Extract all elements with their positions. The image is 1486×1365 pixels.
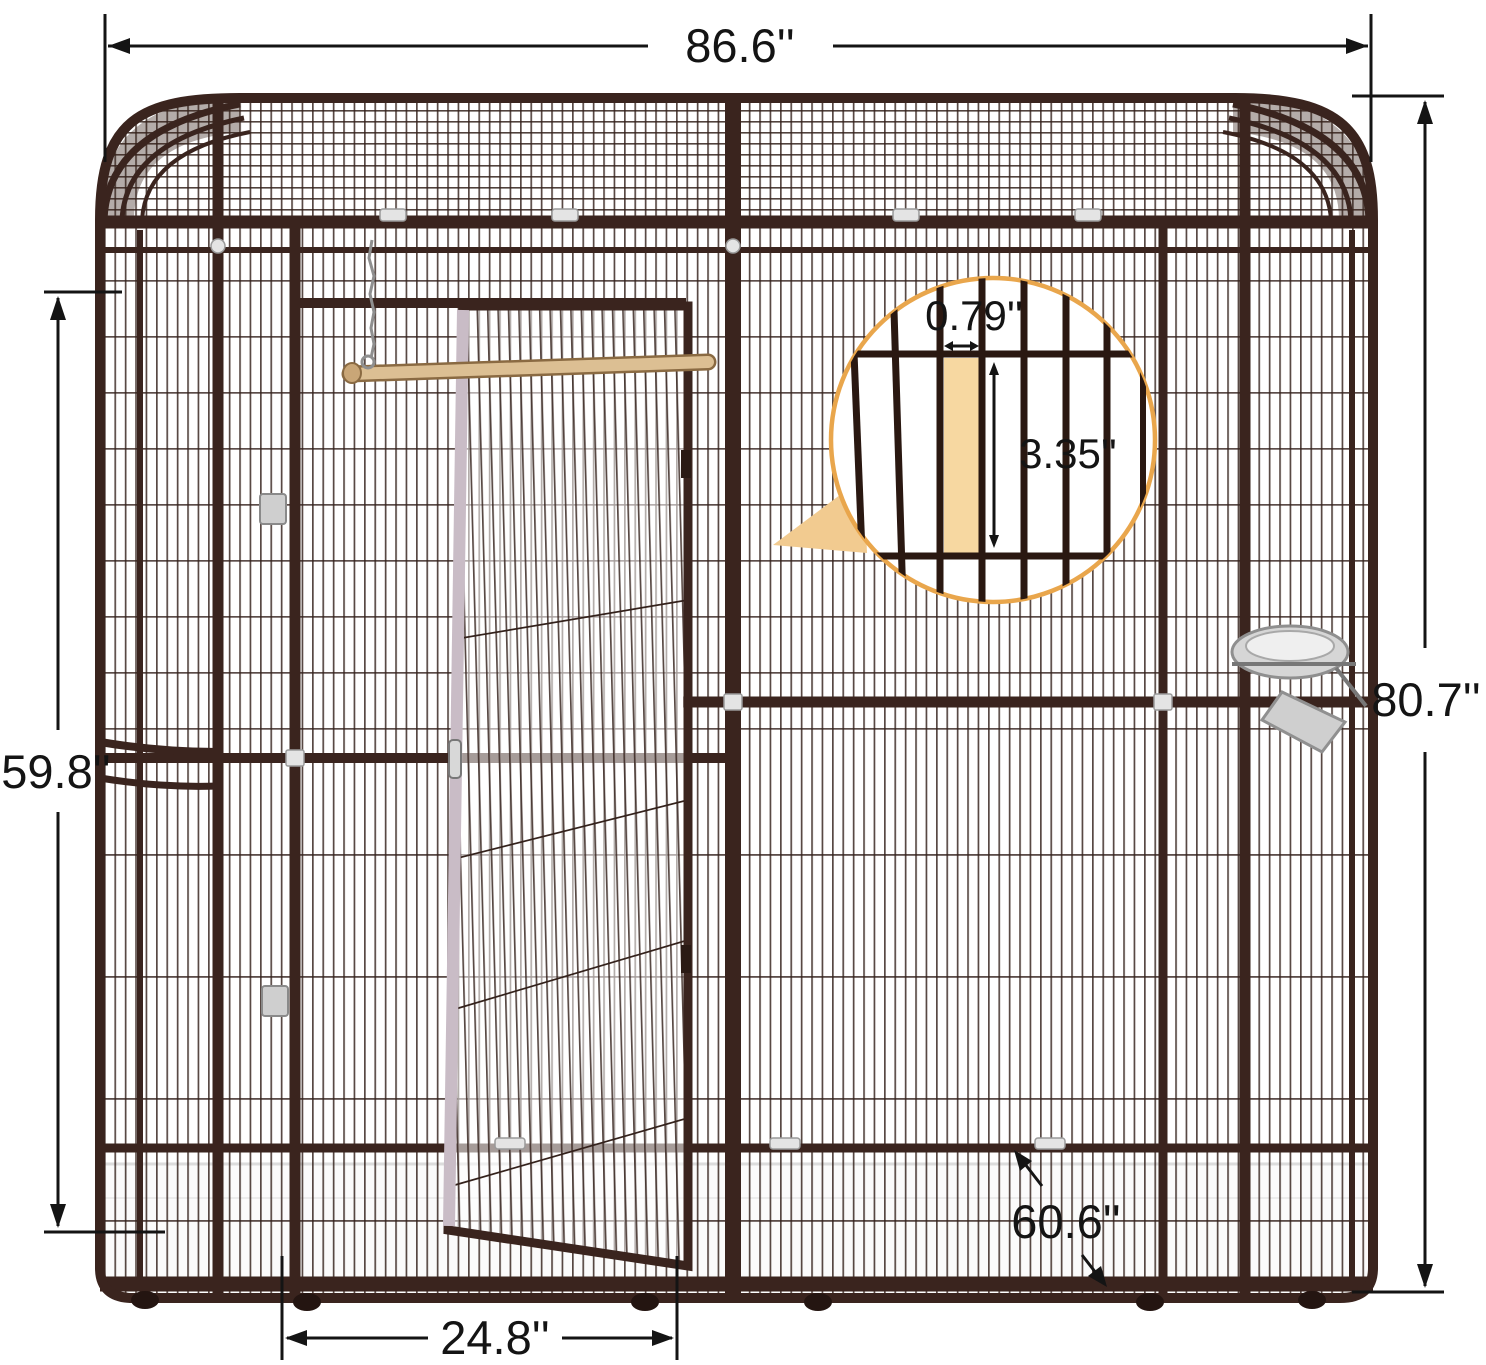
aviary-cage-diagram: 0.79'' 3.35'' 86.6'' xyxy=(0,0,1486,1365)
side-height-label: 59.8'' xyxy=(1,745,110,798)
wire-gap-width-label: 0.79'' xyxy=(925,292,1023,339)
cage-body xyxy=(100,98,1373,1311)
overall-width-label: 86.6'' xyxy=(685,19,794,72)
door-width-label: 24.8'' xyxy=(440,1311,549,1364)
depth-label: 60.6'' xyxy=(1011,1195,1120,1248)
door-hinge xyxy=(681,450,691,478)
door-handle xyxy=(449,740,461,778)
wire-gap-height-label: 3.35'' xyxy=(1019,430,1117,477)
overall-height-label: 80.7'' xyxy=(1371,673,1480,726)
door-hinge xyxy=(681,945,691,973)
wire-gap-highlight xyxy=(944,358,979,553)
product-dimension-image: 0.79'' 3.35'' 86.6'' xyxy=(0,0,1486,1365)
